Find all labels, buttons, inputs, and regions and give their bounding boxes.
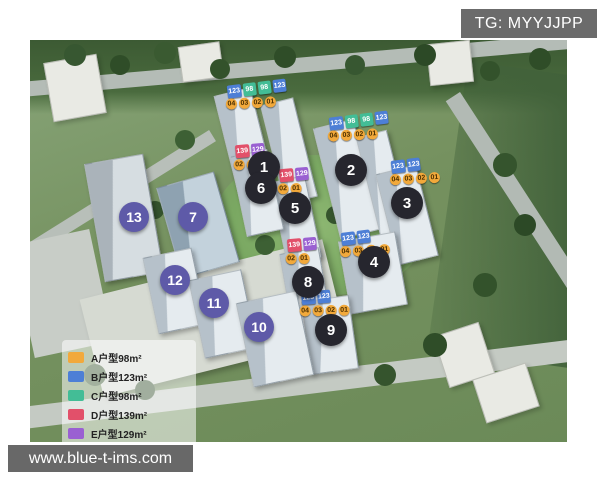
unit-type-color-swatch xyxy=(68,390,84,401)
unit-number-badge: 02 xyxy=(326,305,337,316)
tree-clusters xyxy=(30,40,40,50)
unit-type-tag: 123 xyxy=(341,231,356,246)
roof-tags-building-4: 123123 04030201 xyxy=(341,227,391,259)
unit-number-badge: 01 xyxy=(367,128,379,140)
unit-number-badge: 01 xyxy=(265,96,277,108)
legend-item: D户型139m² xyxy=(68,405,190,424)
legend-item: B户型123m² xyxy=(68,367,190,386)
legend-item: C户型98m² xyxy=(68,386,190,405)
unit-type-tag: 123 xyxy=(391,159,406,174)
roof-tags-building-2: 1239898123 04030201 xyxy=(329,110,391,143)
roof-tags-building-6: 139129 0201 xyxy=(235,143,267,171)
offsite-building xyxy=(178,41,225,82)
website-watermark: www.blue-t-ims.com xyxy=(8,445,193,472)
unit-number-badge: 03 xyxy=(313,305,324,316)
unit-type-color-swatch xyxy=(68,409,84,420)
unit-number-badge: 04 xyxy=(390,174,402,186)
roof-tags-building-5: 139129 0201 xyxy=(279,167,311,195)
unit-number-badge: 03 xyxy=(341,130,353,142)
unit-number-badge: 03 xyxy=(353,245,365,257)
unit-number-badge: 04 xyxy=(340,246,352,258)
unit-type-label: B户型123m² xyxy=(91,369,147,384)
legend-item: A户型98m² xyxy=(68,348,190,367)
unit-type-tag: 139 xyxy=(279,168,294,182)
unit-type-color-swatch xyxy=(68,352,84,363)
unit-type-label: E户型129m² xyxy=(91,426,147,441)
unit-number-badge: 01 xyxy=(429,172,441,184)
unit-number-badge: 02 xyxy=(234,159,245,170)
unit-type-tag: 123 xyxy=(317,290,332,304)
offsite-building xyxy=(43,54,107,122)
tg-watermark-badge: TG: MYYJJPP xyxy=(461,9,597,38)
unit-number-badge: 04 xyxy=(226,98,238,110)
unit-type-tag: 123 xyxy=(406,157,421,172)
unit-type-color-swatch xyxy=(68,371,84,382)
unit-type-color-swatch xyxy=(68,428,84,439)
unit-number-badge: 02 xyxy=(286,253,297,264)
unit-type-tag: 123 xyxy=(374,110,389,125)
unit-type-tag: 123 xyxy=(301,291,316,305)
unit-number-badge: 01 xyxy=(291,183,302,194)
offsite-building xyxy=(426,40,474,86)
unit-number-badge: 03 xyxy=(403,173,415,185)
unit-number-badge: 04 xyxy=(328,130,340,142)
unit-type-tag: 123 xyxy=(272,78,287,93)
unit-number-badge: 03 xyxy=(239,98,251,110)
unit-type-label: A户型98m² xyxy=(91,350,142,365)
unit-type-tag: 129 xyxy=(251,143,266,157)
unit-number-badge: 02 xyxy=(416,173,428,185)
unit-number-badge: 01 xyxy=(247,159,258,170)
unit-type-tag: 129 xyxy=(295,167,310,181)
unit-number-badge: 01 xyxy=(379,244,391,256)
unit-type-tag: 123 xyxy=(356,229,371,244)
unit-type-tag: 123 xyxy=(329,116,344,131)
unit-type-label: C户型98m² xyxy=(91,388,142,403)
roof-tags-building-9: 123123 04030201 xyxy=(301,288,350,318)
unit-type-tag: 123 xyxy=(227,84,242,99)
unit-type-tag: 98 xyxy=(257,80,271,94)
roof-tags-building-8: 139129 0201 xyxy=(287,237,319,265)
unit-number-badge: 02 xyxy=(366,245,378,257)
unit-type-tag: 139 xyxy=(287,238,302,252)
unit-number-badge: 01 xyxy=(299,253,310,264)
site-plan-rendering: 1239898123 04030201 1239898123 04030201 … xyxy=(30,40,567,442)
unit-type-tag: 139 xyxy=(235,144,250,158)
unit-type-legend: A户型98m² B户型123m² C户型98m² D户型139m² E户型129… xyxy=(62,340,196,442)
roof-tags-building-3: 123123 04030201 xyxy=(391,155,441,187)
unit-type-tag: 129 xyxy=(303,237,318,251)
legend-item: E户型129m² xyxy=(68,424,190,442)
unit-type-label: D户型139m² xyxy=(91,407,147,422)
unit-number-badge: 02 xyxy=(354,129,366,141)
unit-number-badge: 01 xyxy=(339,305,350,316)
unit-number-badge: 02 xyxy=(278,183,289,194)
unit-number-badge: 04 xyxy=(300,305,311,316)
unit-type-tag: 98 xyxy=(359,112,373,126)
unit-number-badge: 02 xyxy=(252,97,264,109)
unit-type-tag: 98 xyxy=(344,114,358,128)
unit-type-tag: 98 xyxy=(242,82,256,96)
